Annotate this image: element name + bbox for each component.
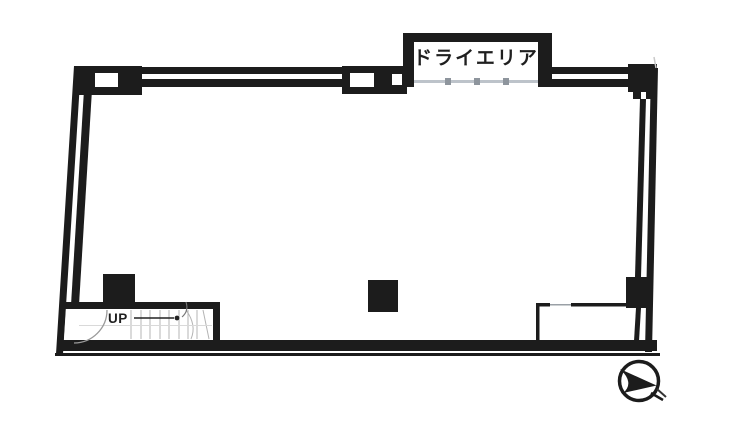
north-arrow-icon [620,362,667,401]
interior-column [368,280,398,312]
partition-wall-vertical [536,303,540,341]
window-mullion [474,78,480,85]
right-wall-inner [635,99,646,277]
column-inset [350,73,374,87]
column-inset [392,74,402,85]
window-mullion [503,78,509,85]
wall-column-above-stairs [103,274,135,306]
compass-tail-tick [657,389,666,397]
partition-door-gap [550,304,571,306]
dry-area-wall-top [403,33,552,42]
floorplan-svg: UP ドライエリア [0,0,754,421]
bottom-wall-outer-line [55,353,660,356]
column-inset [95,73,118,87]
right-wall-inner-lower [634,308,641,341]
window-mullion [445,78,451,85]
dry-area-label: ドライエリア [413,47,539,69]
dry-area-wall-right [538,33,552,87]
right-wall-outer [645,68,658,352]
stair-box-top-wall [62,302,220,309]
wall-column-top-right-leg [633,92,641,99]
bottom-wall-main [57,340,657,351]
stair-box-right-wall [213,302,220,341]
floorplan-canvas: UP ドライエリア [0,0,754,421]
stair-interior [64,309,213,340]
up-label: UP [108,311,128,326]
wall-column-right-lower [626,277,652,308]
partition-wall-horizontal [571,303,628,307]
